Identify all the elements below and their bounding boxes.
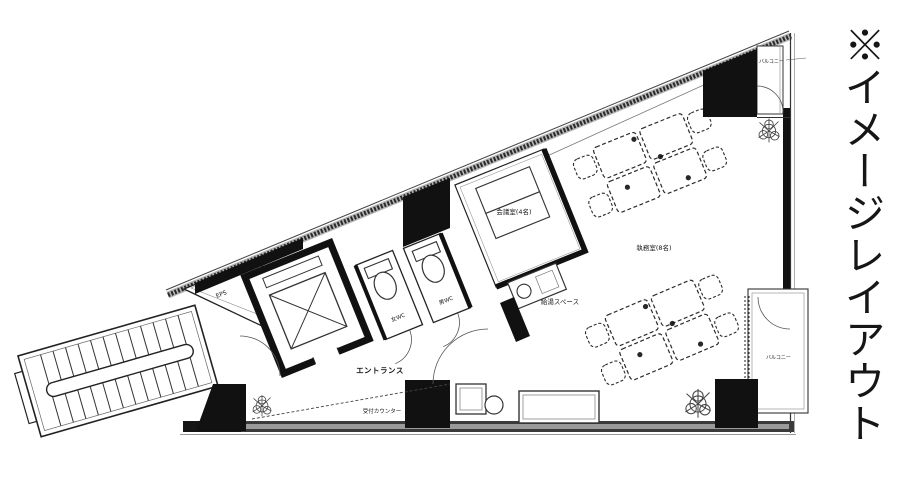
wc-right: 男WC	[403, 233, 480, 346]
cabinet	[519, 391, 599, 423]
label-balcony-top: バルコニー	[759, 59, 784, 65]
label-office-room: 執務室(8名)	[636, 243, 671, 252]
floorplan-screenshot: EPS 女WC 男WC 会議室(4名)	[0, 0, 900, 492]
column	[405, 380, 450, 428]
desk-cluster-2	[582, 270, 742, 391]
image-layout-annotation: ※イメージレイアウト	[824, 24, 882, 476]
side-table	[456, 384, 486, 414]
label-balcony-right: バルコニー	[766, 355, 791, 361]
staircase	[10, 305, 218, 439]
label-kitchenette: 給湯スペース	[541, 297, 579, 306]
column	[715, 379, 758, 428]
column	[196, 384, 246, 431]
plant-icon	[759, 119, 780, 143]
plant-icon	[253, 395, 272, 416]
balcony-top-right: バルコニー	[757, 46, 806, 118]
label-entrance: エントランス	[356, 366, 404, 375]
stool	[485, 396, 503, 414]
label-meeting-room: 会議室(4名)	[496, 207, 531, 216]
label-reception-counter: 受付カウンター	[363, 407, 402, 415]
entrance-door-arc	[433, 329, 488, 384]
floor-plan: EPS 女WC 男WC 会議室(4名)	[0, 0, 900, 492]
plant-icon	[685, 389, 710, 418]
